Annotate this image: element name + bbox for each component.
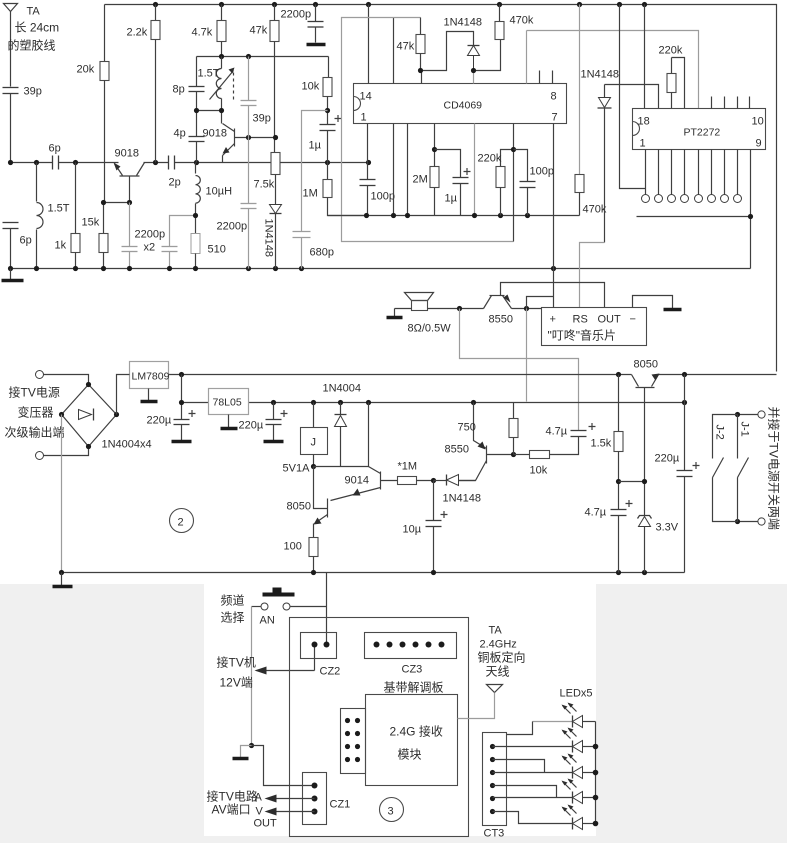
svg-text:AN: AN bbox=[260, 615, 275, 627]
svg-text:4.7µ: 4.7µ bbox=[585, 507, 607, 519]
svg-text:2200p: 2200p bbox=[135, 229, 166, 241]
svg-text:选择: 选择 bbox=[221, 611, 245, 625]
svg-text:5V1A: 5V1A bbox=[283, 463, 311, 475]
svg-text:9014: 9014 bbox=[345, 475, 369, 487]
svg-text:8p: 8p bbox=[173, 84, 185, 96]
svg-text:10k: 10k bbox=[302, 81, 320, 93]
svg-text:9018: 9018 bbox=[203, 128, 227, 140]
svg-text:1µ: 1µ bbox=[445, 193, 458, 205]
svg-text:10µ: 10µ bbox=[403, 524, 422, 536]
svg-text:2M: 2M bbox=[413, 174, 428, 186]
svg-text:220k: 220k bbox=[659, 45, 683, 57]
svg-text:"叮咚"音乐片: "叮咚"音乐片 bbox=[548, 328, 617, 343]
svg-text:6p: 6p bbox=[20, 235, 32, 247]
svg-text:4p: 4p bbox=[174, 128, 186, 140]
svg-text:47k: 47k bbox=[250, 25, 268, 37]
svg-text:10k: 10k bbox=[530, 465, 548, 477]
svg-text:1N4004x4: 1N4004x4 bbox=[102, 439, 152, 451]
svg-text:1N4148: 1N4148 bbox=[581, 69, 620, 81]
svg-text:8550: 8550 bbox=[445, 444, 469, 456]
svg-text:2p: 2p bbox=[169, 177, 181, 189]
svg-text:20k: 20k bbox=[77, 64, 95, 76]
svg-text:模块: 模块 bbox=[398, 748, 422, 762]
svg-text:基带解调板: 基带解调板 bbox=[384, 681, 444, 695]
svg-text:14: 14 bbox=[360, 91, 372, 103]
svg-text:变压器: 变压器 bbox=[18, 405, 54, 420]
svg-text:1N4148: 1N4148 bbox=[444, 17, 483, 29]
svg-text:8050: 8050 bbox=[287, 501, 311, 513]
svg-text:470k: 470k bbox=[510, 15, 534, 27]
svg-text:RS: RS bbox=[573, 314, 588, 326]
svg-text:8050: 8050 bbox=[634, 359, 658, 371]
svg-text:接TV电源: 接TV电源 bbox=[9, 385, 60, 400]
svg-text:3: 3 bbox=[388, 806, 394, 818]
svg-text:AV端口: AV端口 bbox=[212, 803, 251, 817]
svg-text:100: 100 bbox=[284, 541, 302, 553]
svg-text:470k: 470k bbox=[583, 204, 607, 216]
svg-text:9: 9 bbox=[756, 138, 762, 150]
svg-text:接TV机: 接TV机 bbox=[217, 655, 256, 670]
svg-text:1k: 1k bbox=[55, 240, 67, 252]
svg-text:LM7809: LM7809 bbox=[132, 371, 170, 383]
svg-text:OUT: OUT bbox=[254, 818, 278, 830]
svg-text:天线: 天线 bbox=[486, 665, 510, 679]
svg-text:10µH: 10µH bbox=[206, 186, 233, 198]
svg-text:并接于TV电源开关两端: 并接于TV电源开关两端 bbox=[767, 407, 782, 530]
svg-text:次级输出端: 次级输出端 bbox=[5, 425, 65, 440]
svg-text:1M: 1M bbox=[303, 188, 318, 200]
svg-text:1N4004: 1N4004 bbox=[323, 383, 362, 395]
svg-text:8Ω/0.5W: 8Ω/0.5W bbox=[408, 323, 452, 335]
svg-text:220µ: 220µ bbox=[655, 453, 680, 465]
svg-text:2.4GHz: 2.4GHz bbox=[480, 639, 517, 651]
svg-text:2.4G 接收: 2.4G 接收 bbox=[390, 724, 443, 739]
svg-text:4.7k: 4.7k bbox=[192, 27, 213, 39]
svg-text:2200p: 2200p bbox=[281, 9, 312, 21]
svg-text:J-1: J-1 bbox=[739, 422, 751, 437]
svg-text:220µ: 220µ bbox=[147, 415, 172, 427]
svg-text:12V端: 12V端 bbox=[220, 676, 253, 690]
svg-text:6p: 6p bbox=[49, 143, 61, 155]
svg-text:8: 8 bbox=[551, 91, 557, 103]
svg-text:CD4069: CD4069 bbox=[444, 100, 483, 112]
svg-text:CT3: CT3 bbox=[484, 828, 505, 840]
svg-text:*1M: *1M bbox=[398, 461, 418, 473]
svg-text:1.5k: 1.5k bbox=[591, 438, 612, 450]
svg-text:长 24cm: 长 24cm bbox=[15, 21, 60, 35]
svg-text:+: + bbox=[550, 314, 556, 326]
svg-text:1.5T: 1.5T bbox=[198, 68, 220, 80]
svg-text:PT2272: PT2272 bbox=[684, 127, 721, 139]
svg-text:2200p: 2200p bbox=[217, 221, 248, 233]
svg-text:750: 750 bbox=[458, 422, 476, 434]
svg-text:47k: 47k bbox=[397, 41, 415, 53]
svg-text:2: 2 bbox=[178, 517, 184, 529]
svg-text:7: 7 bbox=[552, 112, 558, 124]
svg-text:7.5k: 7.5k bbox=[254, 179, 275, 191]
svg-text:1.5T: 1.5T bbox=[48, 203, 70, 215]
svg-text:CZ3: CZ3 bbox=[402, 664, 423, 676]
svg-text:100p: 100p bbox=[371, 191, 395, 203]
svg-text:的塑胶线: 的塑胶线 bbox=[8, 38, 56, 53]
svg-text:CZ1: CZ1 bbox=[330, 799, 351, 811]
svg-text:x2: x2 bbox=[144, 242, 156, 254]
svg-text:J-2: J-2 bbox=[714, 425, 726, 440]
svg-text:2.2k: 2.2k bbox=[127, 27, 148, 39]
svg-text:220µ: 220µ bbox=[239, 420, 264, 432]
svg-text:220k: 220k bbox=[478, 153, 502, 165]
svg-text:−: − bbox=[630, 314, 636, 326]
svg-text:TA: TA bbox=[27, 6, 41, 18]
svg-text:1: 1 bbox=[640, 138, 646, 150]
svg-text:3.3V: 3.3V bbox=[656, 522, 679, 534]
svg-text:9018: 9018 bbox=[115, 148, 139, 160]
svg-text:J: J bbox=[311, 437, 317, 449]
svg-text:CZ2: CZ2 bbox=[320, 666, 341, 678]
svg-text:V: V bbox=[256, 806, 264, 818]
svg-text:78L05: 78L05 bbox=[213, 397, 242, 409]
svg-text:18: 18 bbox=[638, 116, 650, 128]
svg-text:4.7µ: 4.7µ bbox=[546, 426, 568, 438]
svg-text:1N4148: 1N4148 bbox=[263, 219, 275, 258]
svg-text:8550: 8550 bbox=[489, 314, 513, 326]
svg-text:1: 1 bbox=[361, 112, 367, 124]
svg-text:10: 10 bbox=[752, 116, 764, 128]
svg-text:15k: 15k bbox=[82, 217, 100, 229]
svg-text:39p: 39p bbox=[24, 86, 42, 98]
svg-text:TA: TA bbox=[489, 625, 503, 637]
svg-text:OUT: OUT bbox=[598, 314, 622, 326]
svg-text:1N4148: 1N4148 bbox=[443, 493, 482, 505]
svg-text:1µ: 1µ bbox=[309, 140, 322, 152]
svg-text:680p: 680p bbox=[310, 247, 334, 259]
svg-text:频道: 频道 bbox=[221, 594, 245, 608]
svg-text:39p: 39p bbox=[253, 113, 271, 125]
svg-text:LEDx5: LEDx5 bbox=[560, 688, 593, 700]
svg-text:接TV电路: 接TV电路 bbox=[207, 789, 258, 804]
svg-text:100p: 100p bbox=[530, 166, 554, 178]
svg-text:铜板定向: 铜板定向 bbox=[478, 650, 526, 665]
svg-text:510: 510 bbox=[208, 244, 226, 256]
